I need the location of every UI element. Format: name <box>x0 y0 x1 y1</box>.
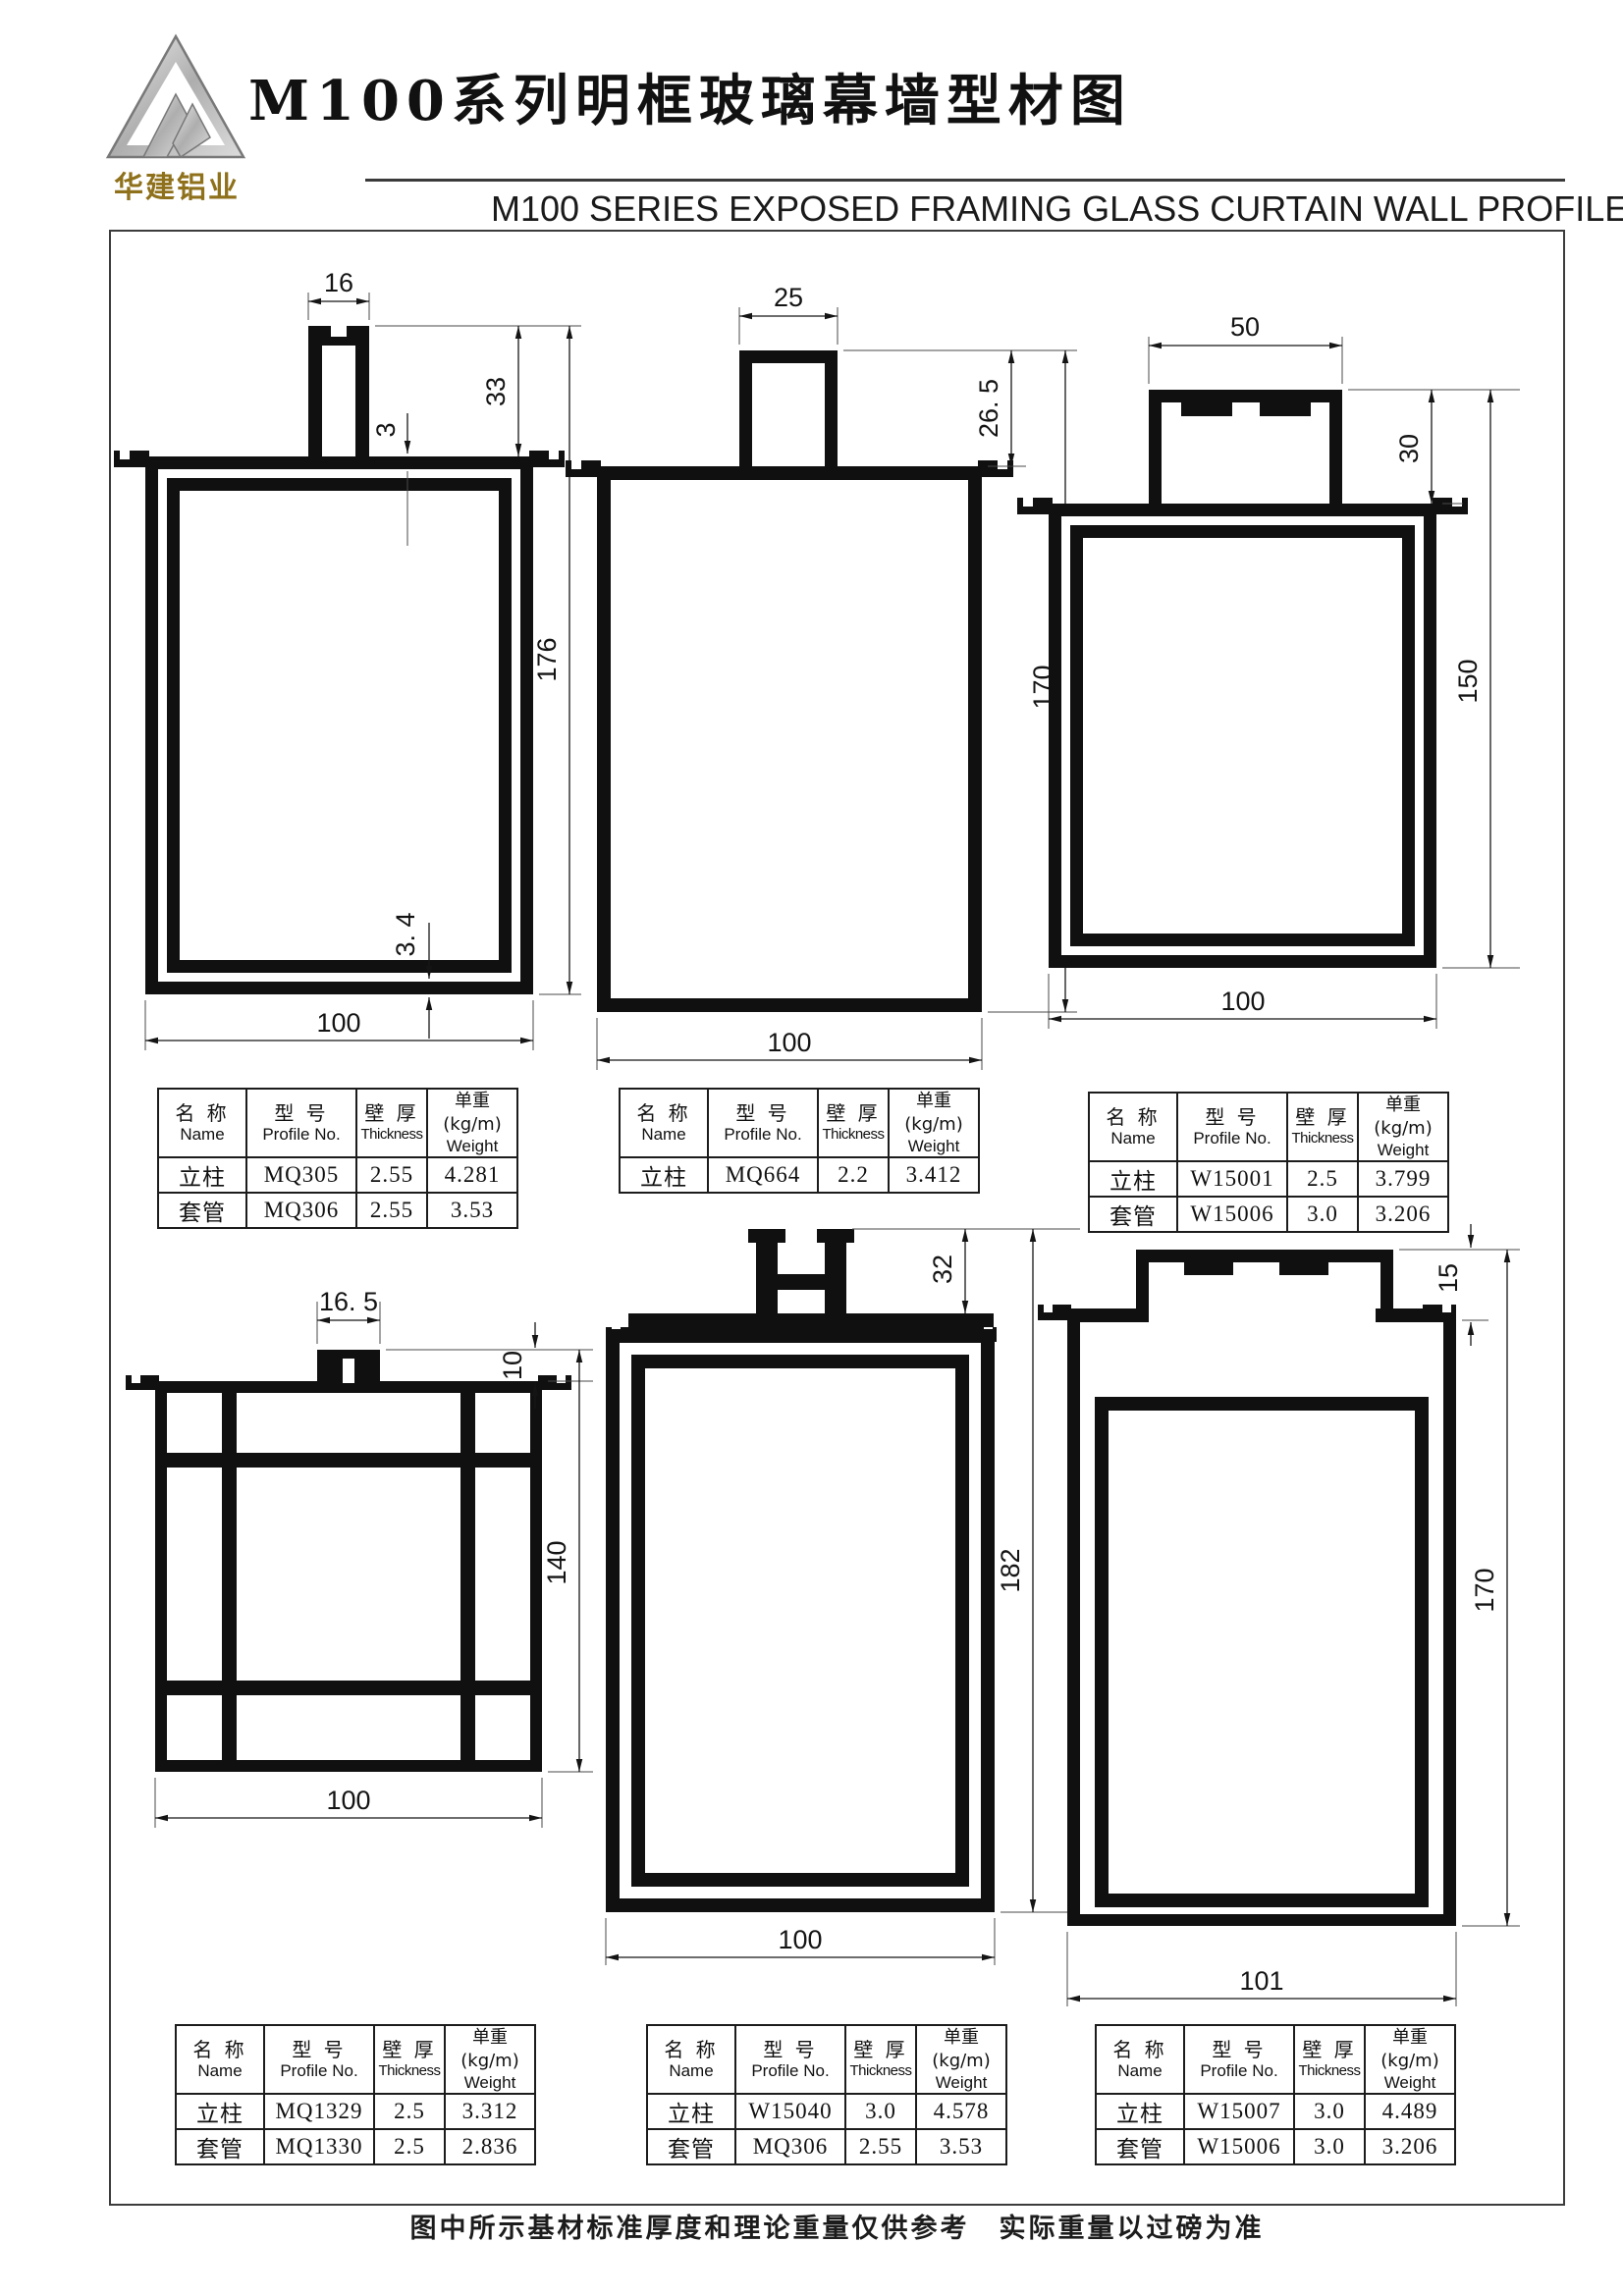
profile-drawing-mq1329: 16. 5 10 140 100 <box>126 1287 593 1828</box>
table-header-row: 名 称Name 型 号Profile No. 壁 厚Thickness 单重(k… <box>620 1089 979 1157</box>
table-header-row: 名 称Name 型 号Profile No. 壁 厚Thickness 单重(k… <box>1096 2025 1455 2094</box>
spec-table-w15040: 名 称Name 型 号Profile No. 壁 厚Thickness 单重(k… <box>646 2024 1007 2165</box>
dim-height: 170 <box>1470 1568 1499 1612</box>
profile-drawing-mq305: 16 33 3 176 3. 4 100 <box>114 268 581 1050</box>
dim-stem-height: 26. 5 <box>974 379 1003 438</box>
table-row: 立柱W150073.04.489 <box>1096 2094 1455 2129</box>
dim-stem-height: 10 <box>498 1351 527 1380</box>
spec-table-mq305: 名 称Name 型 号Profile No. 壁 厚Thickness 单重(k… <box>157 1088 518 1229</box>
dim-stem-width: 16. 5 <box>319 1287 378 1316</box>
profile-drawing-w15007: 15 170 101 <box>1038 1224 1520 2006</box>
table-header-row: 名 称Name 型 号Profile No. 壁 厚Thickness 单重(k… <box>158 1089 517 1157</box>
table-row: 立柱MQ3052.554.281 <box>158 1157 517 1193</box>
dim-height: 182 <box>996 1548 1025 1592</box>
dim-stem-width: 16 <box>324 268 353 297</box>
profile-drawing-w15001: 50 30 150 100 <box>1017 312 1520 1029</box>
table-row: 立柱MQ13292.53.312 <box>176 2094 535 2129</box>
table-header-row: 名 称Name 型 号Profile No. 壁 厚Thickness 单重(k… <box>647 2025 1006 2094</box>
dim-width: 100 <box>1220 987 1265 1016</box>
dim-width: 100 <box>767 1028 811 1057</box>
footer-note: 图中所示基材标准厚度和理论重量仅供参考 实际重量以过磅为准 <box>109 2207 1565 2245</box>
dim-step-height: 15 <box>1434 1263 1463 1293</box>
table-row: 套管MQ3062.553.53 <box>158 1193 517 1228</box>
spec-table-mq664: 名 称Name 型 号Profile No. 壁 厚Thickness 单重(k… <box>619 1088 980 1194</box>
table-row: 套管MQ13302.52.836 <box>176 2129 535 2164</box>
dim-height: 140 <box>542 1540 571 1584</box>
dim-stem-width: 25 <box>774 283 803 312</box>
table-row: 立柱W150403.04.578 <box>647 2094 1006 2129</box>
dim-head-width: 50 <box>1230 312 1260 342</box>
dim-width: 100 <box>778 1925 822 1954</box>
dim-bottom-wall: 3. 4 <box>391 912 420 956</box>
spec-table-mq1329: 名 称Name 型 号Profile No. 壁 厚Thickness 单重(k… <box>175 2024 536 2165</box>
dim-head-height: 30 <box>1394 434 1424 463</box>
dim-width: 101 <box>1239 1966 1283 1996</box>
table-header-row: 名 称Name 型 号Profile No. 壁 厚Thickness 单重(k… <box>176 2025 535 2094</box>
table-row: 立柱W150012.53.799 <box>1089 1161 1448 1197</box>
table-row: 套管MQ3062.553.53 <box>647 2129 1006 2164</box>
table-header-row: 名 称Name 型 号Profile No. 壁 厚Thickness 单重(k… <box>1089 1093 1448 1161</box>
profile-drawing-w15040: 32 182 100 <box>606 1229 1080 1965</box>
spec-table-w15007: 名 称Name 型 号Profile No. 壁 厚Thickness 单重(k… <box>1095 2024 1456 2165</box>
spec-table-w15001: 名 称Name 型 号Profile No. 壁 厚Thickness 单重(k… <box>1088 1092 1449 1233</box>
dim-height: 150 <box>1453 659 1483 703</box>
table-row: 套管W150063.03.206 <box>1096 2129 1455 2164</box>
table-row: 套管W150063.03.206 <box>1089 1197 1448 1232</box>
dim-top-wall: 3 <box>371 422 401 437</box>
dim-stem-height: 33 <box>481 377 511 406</box>
dim-height: 176 <box>532 637 562 681</box>
dim-width: 100 <box>316 1008 360 1038</box>
table-row: 立柱MQ6642.23.412 <box>620 1157 979 1193</box>
dim-stem-height: 32 <box>928 1255 957 1284</box>
profile-drawing-mq664: 25 26. 5 170 100 <box>566 283 1077 1070</box>
dim-width: 100 <box>326 1786 370 1815</box>
